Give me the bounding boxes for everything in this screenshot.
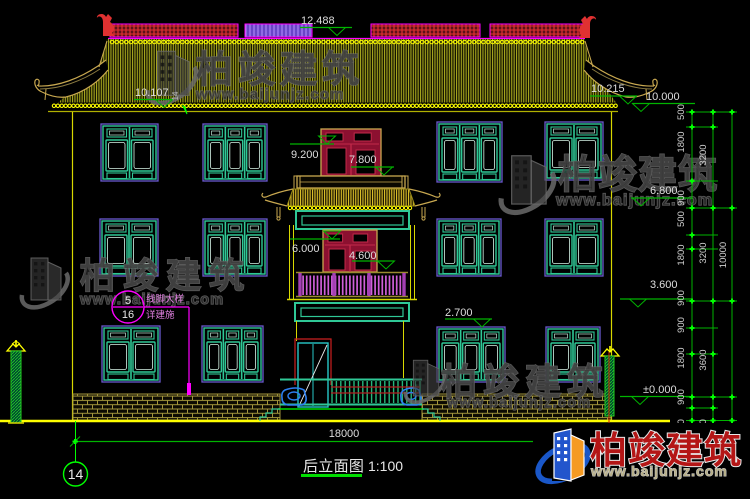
- svg-text:±0.000: ±0.000: [643, 384, 677, 396]
- svg-text:14: 14: [68, 466, 84, 482]
- svg-text:900: 900: [676, 190, 687, 206]
- svg-text:3200: 3200: [698, 242, 709, 263]
- svg-text:www.baijunjz.com: www.baijunjz.com: [590, 463, 728, 479]
- svg-text:900: 900: [676, 317, 687, 333]
- svg-text:12.488: 12.488: [301, 15, 335, 27]
- svg-text:柏竣建筑: 柏竣建筑: [196, 48, 364, 90]
- svg-text:www.baijunjz.com: www.baijunjz.com: [555, 192, 713, 209]
- svg-text:6.800: 6.800: [650, 185, 678, 197]
- svg-text:线脚大样: 线脚大样: [146, 293, 184, 305]
- svg-text:900: 900: [676, 290, 687, 306]
- svg-text:详建施: 详建施: [146, 309, 175, 321]
- svg-text:10.215: 10.215: [591, 83, 625, 95]
- svg-text:后立面图: 后立面图: [303, 458, 364, 475]
- svg-text:2.700: 2.700: [445, 307, 473, 319]
- svg-text:4.600: 4.600: [349, 250, 377, 262]
- svg-text:16: 16: [122, 309, 134, 321]
- svg-text:1:100: 1:100: [368, 458, 403, 474]
- svg-text:1800: 1800: [676, 131, 687, 152]
- svg-text:柏竣建筑: 柏竣建筑: [80, 256, 252, 296]
- svg-text:7.800: 7.800: [349, 154, 377, 166]
- svg-text:500: 500: [676, 104, 687, 120]
- svg-text:900: 900: [676, 389, 687, 405]
- svg-text:10000: 10000: [718, 242, 729, 268]
- svg-text:6.000: 6.000: [292, 243, 320, 255]
- svg-text:1800: 1800: [676, 244, 687, 265]
- svg-text:14: 14: [171, 91, 180, 100]
- svg-text:3600: 3600: [698, 349, 709, 370]
- svg-text:www.baijunjz.com: www.baijunjz.com: [446, 395, 591, 411]
- svg-text:3.600: 3.600: [650, 279, 678, 291]
- svg-text:5: 5: [125, 295, 131, 307]
- svg-text:10.107: 10.107: [135, 87, 169, 99]
- svg-text:500: 500: [676, 211, 687, 227]
- svg-text:3200: 3200: [698, 144, 709, 165]
- svg-text:18000: 18000: [329, 428, 360, 440]
- svg-text:9.200: 9.200: [291, 149, 319, 161]
- svg-text:1800: 1800: [676, 347, 687, 368]
- svg-text:10.000: 10.000: [646, 91, 680, 103]
- svg-text:柏竣建筑: 柏竣建筑: [558, 154, 718, 197]
- svg-text:www.baijunjz.com: www.baijunjz.com: [195, 86, 345, 103]
